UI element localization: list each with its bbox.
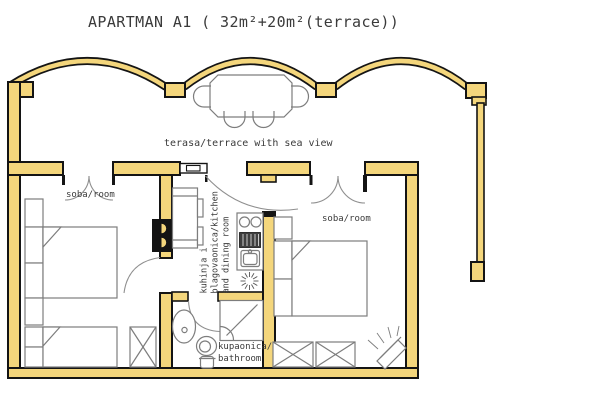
nightstand: [25, 298, 43, 325]
wall-bathroom-left: [160, 293, 172, 368]
wall-top-segment-1: [8, 162, 63, 175]
bathroom-label: kupaonica/bathroom: [218, 341, 272, 365]
nightstand: [25, 199, 43, 227]
wardrobe-right-1: [273, 342, 313, 367]
kitchen-label-line1: kuhinja i: [200, 247, 210, 293]
washbasin: [173, 310, 196, 343]
entry-door-hinge-block: [261, 175, 276, 182]
terrace-dining-set: [194, 75, 309, 128]
dining-set: [173, 188, 204, 248]
terrace-pillar-mid-1: [165, 83, 185, 97]
bathroom-label-line2: bathroom: [218, 354, 261, 364]
door-jamb-right-2: [363, 175, 367, 192]
washbasin-bowl: [173, 310, 196, 343]
terrace-pillar-mid-2: [316, 83, 336, 97]
corner-unit: [368, 326, 406, 369]
nightstand: [274, 217, 292, 239]
terrace-chair-right: [291, 86, 309, 107]
pillow-1: [25, 227, 43, 263]
stove-unit: [152, 219, 171, 252]
terrace-right-end-block: [471, 262, 484, 281]
kitchen-counter: [237, 213, 263, 270]
pillow-2: [25, 347, 43, 367]
terrace-right-wall: [477, 103, 484, 263]
wardrobe-right-2: [316, 342, 355, 367]
terrace-chair-left: [194, 86, 212, 107]
bathroom-label-line1: kupaonica/: [218, 342, 272, 352]
kitchen-label-line3: and dining room: [222, 217, 232, 294]
shower: [220, 301, 263, 341]
window-kitchen: [180, 164, 207, 174]
bed-left-single: [25, 298, 117, 367]
mattress: [43, 227, 117, 298]
wall-bathroom-top-stub: [172, 292, 188, 301]
corner-unit-body: [377, 340, 406, 369]
wall-bottom: [8, 368, 418, 378]
door-jamb-left-1: [62, 175, 65, 185]
room-left-label: soba/room: [66, 190, 115, 200]
wardrobe-left: [130, 327, 156, 367]
dining-table: [173, 188, 198, 248]
floor-plan-page: APARTMAN A1 ( 32m²+20m²(terrace)) terasa…: [0, 0, 600, 400]
french-door-right-arc-1: [311, 176, 338, 203]
water-heater-icon: [241, 272, 259, 290]
window-sash: [187, 166, 201, 172]
wall-kitchen-right-cap: [263, 212, 275, 217]
floor-plan-drawing: [0, 0, 600, 400]
terrace-pillar-right: [466, 83, 486, 98]
terrace-label: terasa/terrace with sea view: [164, 138, 333, 149]
mattress: [292, 241, 367, 316]
bed-right-double: [274, 217, 367, 316]
toilet: [197, 337, 217, 369]
bed-left-double: [25, 199, 117, 298]
door-jamb-right-1: [310, 175, 313, 185]
wall-left: [8, 82, 20, 378]
wall-right: [406, 162, 418, 368]
pillow-1: [274, 241, 292, 279]
french-door-right-arc-2: [338, 176, 365, 203]
plan-title: APARTMAN A1 ( 32m²+20m²(terrace)): [88, 13, 399, 31]
wall-top-segment-2: [113, 162, 180, 175]
wall-top-segment-3: [247, 162, 310, 175]
wall-top-segment-4: [365, 162, 418, 175]
terrace-table: [210, 75, 292, 117]
pillow-2: [274, 279, 292, 316]
pillow-1: [25, 327, 43, 347]
kitchen-label: kuhinja iblagovaonica/kitchenand dining …: [200, 192, 233, 294]
door-jamb-left-2: [112, 175, 115, 185]
kitchen-label-line2: blagovaonica/kitchen: [211, 191, 221, 293]
pillow-2: [25, 263, 43, 298]
room-right-label: soba/room: [322, 214, 371, 224]
room-left-door-arc: [124, 258, 160, 294]
